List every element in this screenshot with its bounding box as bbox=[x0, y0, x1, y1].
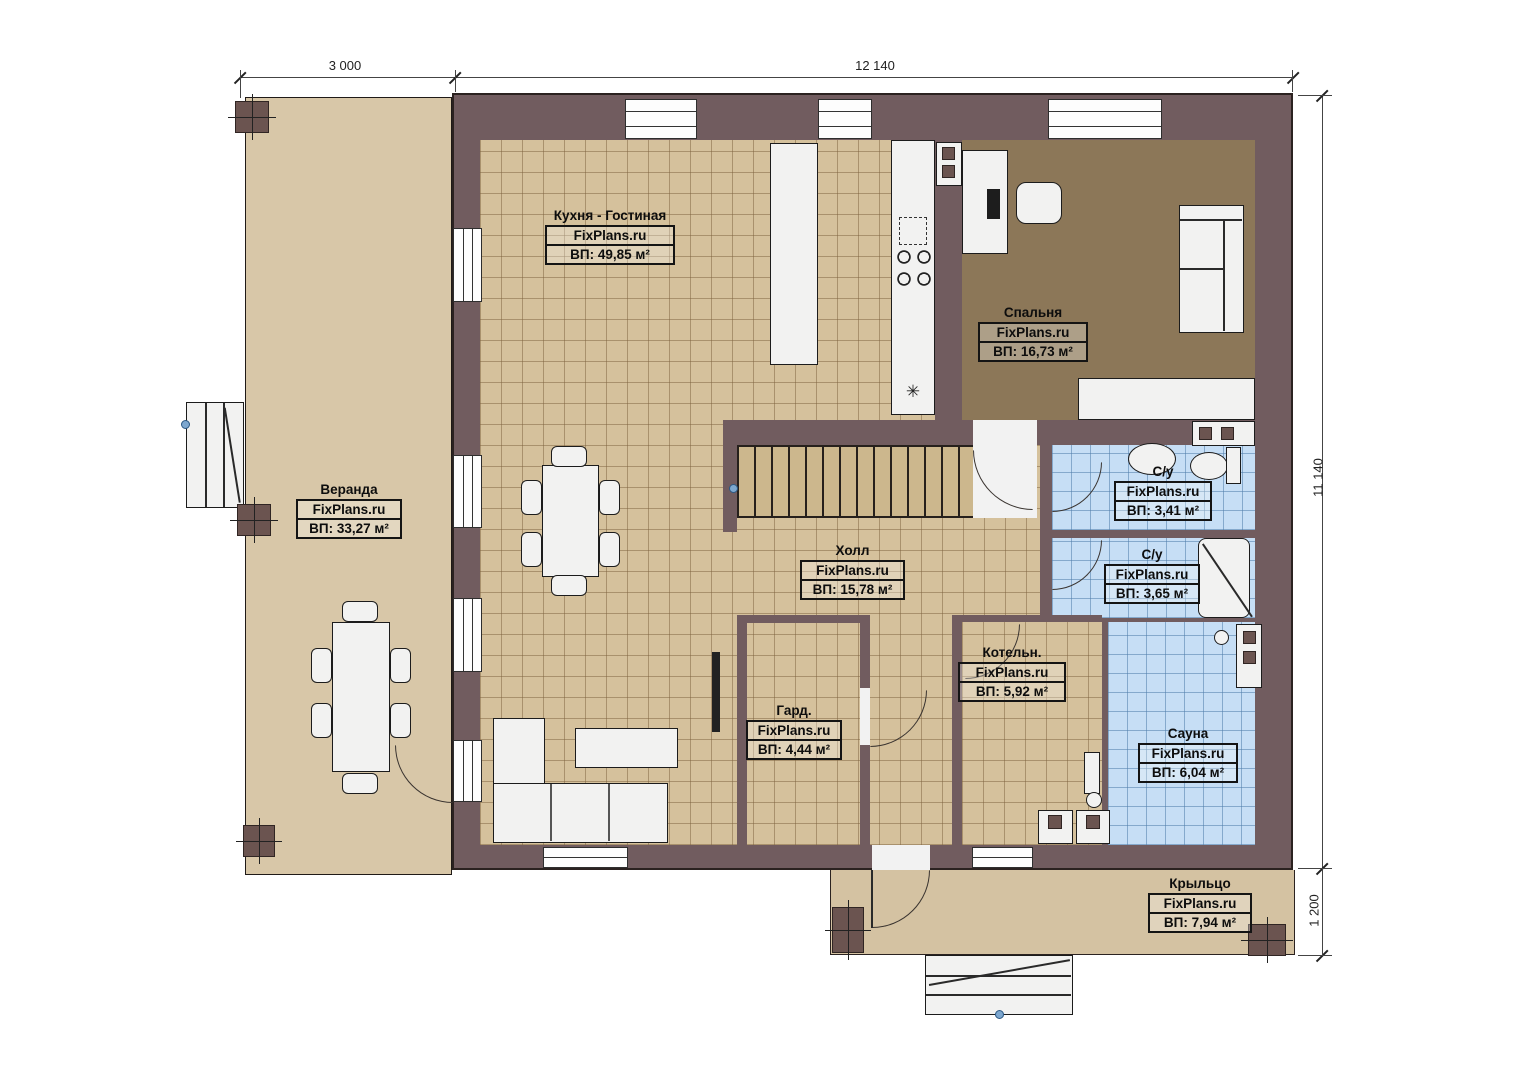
sofa-cushion-line bbox=[608, 784, 610, 841]
fridge-snowflake-icon: ✳ bbox=[897, 382, 929, 402]
boiler-unit bbox=[1084, 752, 1100, 794]
dining-chair bbox=[521, 480, 542, 515]
bedroom-closet bbox=[1078, 378, 1255, 420]
shower-diagonal bbox=[1202, 543, 1252, 617]
column-post bbox=[833, 908, 863, 952]
room-label-veranda: Веранда FixPlans.ru ВП: 33,27 м² bbox=[296, 482, 402, 539]
room-name: Кухня - Гостиная bbox=[545, 208, 675, 223]
watermark: FixPlans.ru bbox=[980, 324, 1086, 343]
column-post bbox=[244, 826, 274, 856]
window-top-1 bbox=[625, 99, 697, 139]
window-left-1 bbox=[453, 228, 482, 302]
coffee-table bbox=[575, 728, 678, 768]
room-label-porch: Крыльцо FixPlans.ru ВП: 7,94 м² bbox=[1148, 876, 1252, 933]
room-label-bathroom-mid: С/у FixPlans.ru ВП: 3,65 м² bbox=[1104, 547, 1200, 604]
room-label-boiler: Котельн. FixPlans.ru ВП: 5,92 м² bbox=[958, 645, 1066, 702]
wall-boiler-top bbox=[952, 615, 1102, 622]
wall-wardrobe-top bbox=[737, 615, 870, 623]
bath-wall-cabinet bbox=[1192, 421, 1255, 446]
kitchen-island bbox=[770, 143, 818, 365]
window-left-2 bbox=[453, 455, 482, 528]
veranda-chair bbox=[342, 773, 378, 794]
water-heater bbox=[1086, 792, 1102, 808]
step-line bbox=[926, 975, 1071, 977]
room-label-hall: Холл FixPlans.ru ВП: 15,78 м² bbox=[800, 543, 905, 600]
cabinet-module bbox=[942, 165, 955, 178]
veranda-chair bbox=[311, 648, 332, 683]
dining-chair bbox=[551, 446, 587, 467]
room-name: С/у bbox=[1114, 464, 1212, 479]
staircase bbox=[737, 445, 973, 518]
room-name: Веранда bbox=[296, 482, 402, 497]
bed-split-line bbox=[1223, 219, 1225, 331]
room-name: Гард. bbox=[746, 703, 842, 718]
room-label-kitchen-living: Кухня - Гостиная FixPlans.ru ВП: 49,85 м… bbox=[545, 208, 675, 265]
watermark: FixPlans.ru bbox=[748, 722, 840, 741]
dimension-line-right-bottom bbox=[1322, 868, 1323, 955]
shower bbox=[1198, 538, 1250, 618]
room-label-sauna: Сауна FixPlans.ru ВП: 6,04 м² bbox=[1138, 726, 1238, 783]
watermark: FixPlans.ru bbox=[1106, 566, 1198, 585]
sofa-cushion-line bbox=[550, 784, 552, 841]
wardrobe-door-opening bbox=[860, 688, 870, 745]
watermark: FixPlans.ru bbox=[1150, 895, 1250, 914]
dim-top-right: 12 140 bbox=[815, 58, 935, 73]
dim-guide bbox=[455, 70, 456, 92]
window-bottom-boiler bbox=[972, 847, 1033, 868]
dim-top-left: 3 000 bbox=[290, 58, 400, 73]
cabinet-module bbox=[1199, 427, 1212, 440]
bed-fold-line bbox=[1180, 268, 1223, 270]
window-top-bedroom bbox=[1048, 99, 1162, 139]
heater-module bbox=[1243, 651, 1256, 664]
room-name: С/у bbox=[1104, 547, 1200, 562]
room-area: ВП: 6,04 м² bbox=[1140, 764, 1236, 781]
room-label-wardrobe: Гард. FixPlans.ru ВП: 4,44 м² bbox=[746, 703, 842, 760]
wall-stair-left bbox=[723, 420, 737, 532]
dining-chair bbox=[599, 532, 620, 567]
dimension-line-top bbox=[240, 77, 1293, 78]
section-marker-dot bbox=[729, 484, 738, 493]
room-area: ВП: 3,41 м² bbox=[1116, 502, 1210, 519]
room-label-bedroom: Спальня FixPlans.ru ВП: 16,73 м² bbox=[978, 305, 1088, 362]
window-left-3 bbox=[453, 598, 482, 672]
stair-line bbox=[205, 403, 207, 507]
stair-diagonal bbox=[224, 408, 240, 503]
room-area: ВП: 3,65 м² bbox=[1106, 585, 1198, 602]
dining-table bbox=[542, 465, 599, 577]
watermark: FixPlans.ru bbox=[1140, 745, 1236, 764]
section-marker-dot bbox=[995, 1010, 1004, 1019]
veranda-chair bbox=[390, 703, 411, 738]
room-area: ВП: 4,44 м² bbox=[748, 741, 840, 758]
bed bbox=[1179, 205, 1244, 333]
room-name: Котельн. bbox=[958, 645, 1066, 660]
porch-steps bbox=[925, 955, 1073, 1015]
veranda-chair bbox=[342, 601, 378, 622]
room-name: Спальня bbox=[978, 305, 1088, 320]
kitchen-sink bbox=[899, 217, 927, 245]
floor-plan: 3 000 12 140 11 140 1 200 bbox=[0, 0, 1528, 1080]
dryer-drum bbox=[1086, 815, 1100, 829]
kitchen-counter bbox=[891, 140, 935, 415]
sauna-stove bbox=[1214, 630, 1229, 645]
section-marker-dot bbox=[181, 420, 190, 429]
room-area: ВП: 7,94 м² bbox=[1150, 914, 1250, 931]
sauna-heater bbox=[1236, 624, 1262, 688]
entry-door-opening bbox=[872, 845, 930, 870]
window-top-2 bbox=[818, 99, 872, 139]
room-name: Сауна bbox=[1138, 726, 1238, 741]
kitchen-wall-cabinet bbox=[936, 142, 962, 186]
cabinet-module bbox=[942, 147, 955, 160]
dim-right-bottom: 1 200 bbox=[1307, 881, 1322, 941]
stove-burners bbox=[892, 244, 933, 292]
watermark: FixPlans.ru bbox=[960, 664, 1064, 683]
dryer bbox=[1076, 810, 1110, 844]
stair-line bbox=[223, 403, 225, 507]
cabinet-module bbox=[1221, 427, 1234, 440]
heater-module bbox=[1243, 631, 1256, 644]
dining-chair bbox=[521, 532, 542, 567]
room-area: ВП: 5,92 м² bbox=[960, 683, 1064, 700]
room-area: ВП: 49,85 м² bbox=[547, 246, 673, 263]
veranda-chair bbox=[390, 648, 411, 683]
desk-monitor bbox=[987, 189, 1000, 219]
veranda-exterior-stairs bbox=[186, 402, 244, 508]
column-post bbox=[236, 102, 268, 132]
washer-drum bbox=[1048, 815, 1062, 829]
room-name: Крыльцо bbox=[1148, 876, 1252, 891]
entry-door-leaf bbox=[871, 870, 873, 928]
dim-guide bbox=[1298, 868, 1332, 869]
sofa-chaise bbox=[493, 718, 545, 788]
watermark: FixPlans.ru bbox=[298, 501, 400, 520]
veranda-table bbox=[332, 622, 390, 772]
sofa bbox=[493, 783, 668, 843]
washer bbox=[1038, 810, 1073, 844]
dim-guide bbox=[1298, 95, 1332, 96]
bed-headboard-line bbox=[1180, 219, 1242, 221]
room-label-bathroom-top: С/у FixPlans.ru ВП: 3,41 м² bbox=[1114, 464, 1212, 521]
room-area: ВП: 33,27 м² bbox=[298, 520, 400, 537]
watermark: FixPlans.ru bbox=[547, 227, 673, 246]
watermark: FixPlans.ru bbox=[802, 562, 903, 581]
column-post bbox=[238, 505, 270, 535]
veranda-door-opening bbox=[453, 740, 482, 802]
toilet-tank bbox=[1226, 447, 1241, 484]
tv-panel bbox=[712, 652, 720, 732]
step-diagonal bbox=[929, 959, 1070, 985]
desk bbox=[962, 150, 1008, 254]
veranda-chair bbox=[311, 703, 332, 738]
room-area: ВП: 16,73 м² bbox=[980, 343, 1086, 360]
dining-chair bbox=[551, 575, 587, 596]
dim-guide bbox=[240, 70, 241, 98]
room-name: Холл bbox=[800, 543, 905, 558]
office-chair bbox=[1016, 182, 1062, 224]
room-area: ВП: 15,78 м² bbox=[802, 581, 903, 598]
column-post bbox=[1249, 925, 1285, 955]
dim-guide bbox=[1298, 955, 1332, 956]
step-line bbox=[926, 994, 1071, 996]
dining-chair bbox=[599, 480, 620, 515]
watermark: FixPlans.ru bbox=[1116, 483, 1210, 502]
dim-guide bbox=[1292, 70, 1293, 92]
dim-right: 11 140 bbox=[1311, 448, 1326, 508]
window-bottom-living bbox=[543, 847, 628, 868]
